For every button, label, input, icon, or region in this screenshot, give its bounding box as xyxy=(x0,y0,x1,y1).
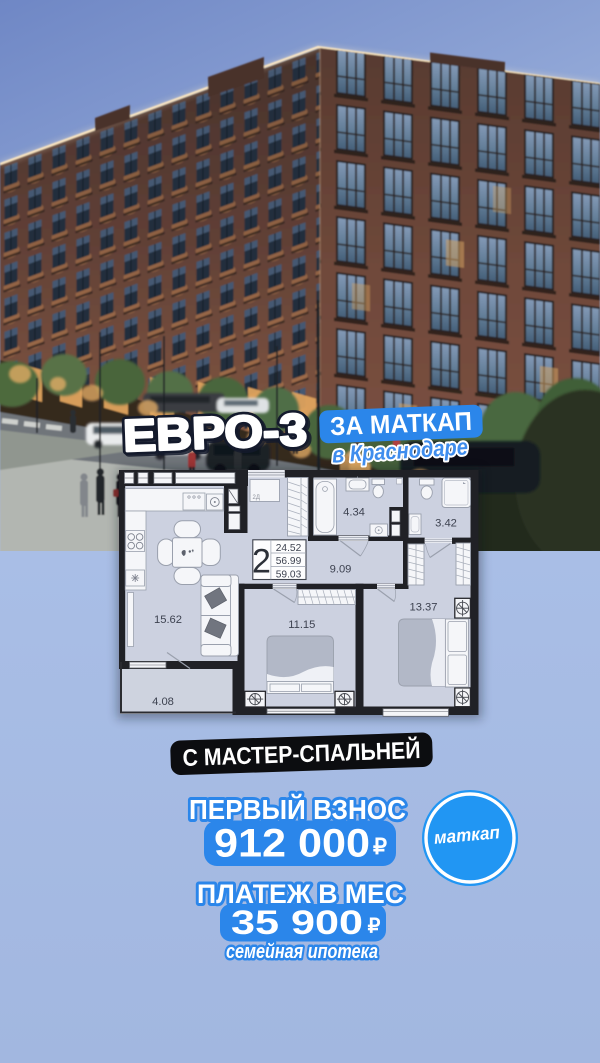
svg-text:912 000: 912 000 xyxy=(214,822,370,866)
svg-text:24.52: 24.52 xyxy=(276,543,302,554)
svg-text:2Д: 2Д xyxy=(253,495,260,501)
svg-text:₽: ₽ xyxy=(373,834,387,859)
svg-text:59.03: 59.03 xyxy=(276,569,302,580)
svg-text:семейная ипотека: семейная ипотека xyxy=(226,941,378,963)
svg-text:3.42: 3.42 xyxy=(435,518,457,530)
svg-text:4.08: 4.08 xyxy=(152,696,174,708)
svg-text:2: 2 xyxy=(252,543,271,581)
svg-text:4.34: 4.34 xyxy=(343,507,365,519)
svg-text:ПЕРВЫЙ ВЗНОС: ПЕРВЫЙ ВЗНОС xyxy=(189,793,406,825)
svg-text:15.62: 15.62 xyxy=(154,614,182,626)
svg-text:11.15: 11.15 xyxy=(288,619,315,631)
svg-text:₽: ₽ xyxy=(368,916,381,938)
svg-text:13.37: 13.37 xyxy=(410,602,438,614)
svg-text:ЕВРО-3: ЕВРО-3 xyxy=(122,404,308,461)
svg-text:35 900: 35 900 xyxy=(231,904,363,942)
svg-text:56.99: 56.99 xyxy=(276,556,302,567)
svg-text:9.09: 9.09 xyxy=(330,564,352,576)
